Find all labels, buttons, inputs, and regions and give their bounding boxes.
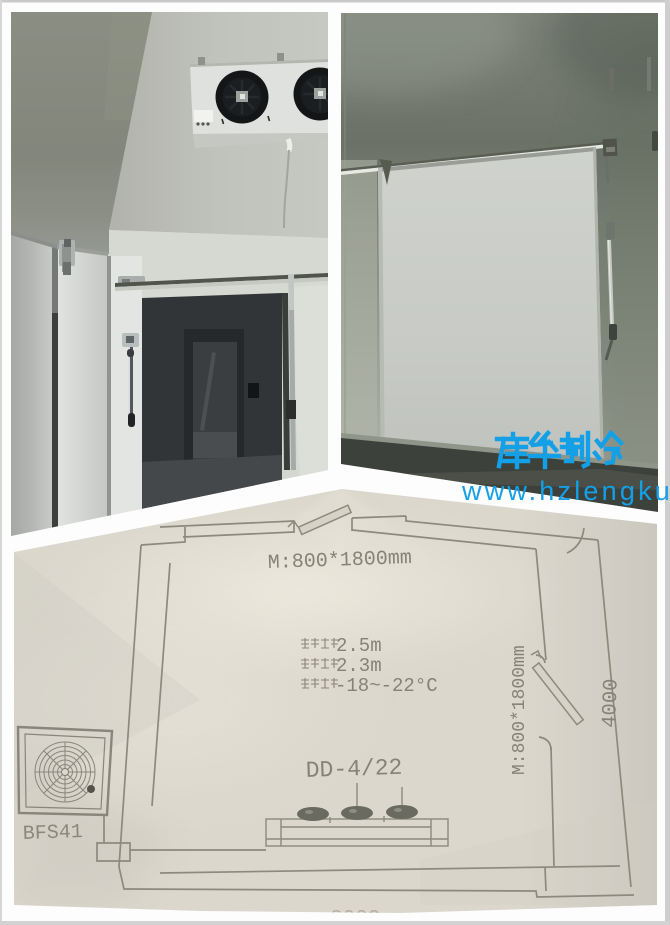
svg-text:2.3m: 2.3m bbox=[336, 655, 382, 677]
svg-text:M:800*1800mm: M:800*1800mm bbox=[510, 645, 530, 775]
svg-text:2.5m: 2.5m bbox=[336, 635, 382, 657]
svg-text:4000: 4000 bbox=[599, 678, 624, 728]
svg-text:www.hzlengku.: www.hzlengku. bbox=[461, 476, 670, 506]
svg-text:DD-4/22: DD-4/22 bbox=[305, 755, 402, 784]
svg-text:-18~-22°C: -18~-22°C bbox=[335, 675, 438, 697]
svg-text:BFS41: BFS41 bbox=[22, 821, 83, 846]
